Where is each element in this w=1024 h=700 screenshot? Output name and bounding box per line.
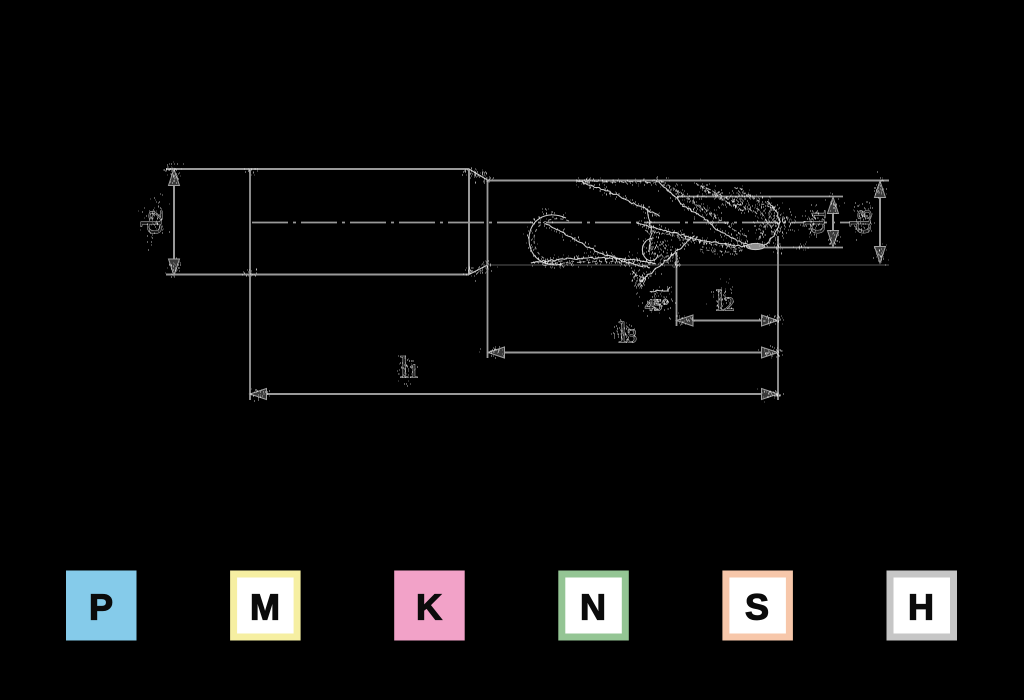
svg-text:N: N xyxy=(580,587,606,628)
svg-text:S: S xyxy=(745,587,769,628)
svg-text:P: P xyxy=(89,587,113,628)
svg-text:H: H xyxy=(908,587,934,628)
svg-text:K: K xyxy=(416,587,442,628)
svg-text:M: M xyxy=(250,587,280,628)
svg-text:45°: 45° xyxy=(645,296,669,315)
